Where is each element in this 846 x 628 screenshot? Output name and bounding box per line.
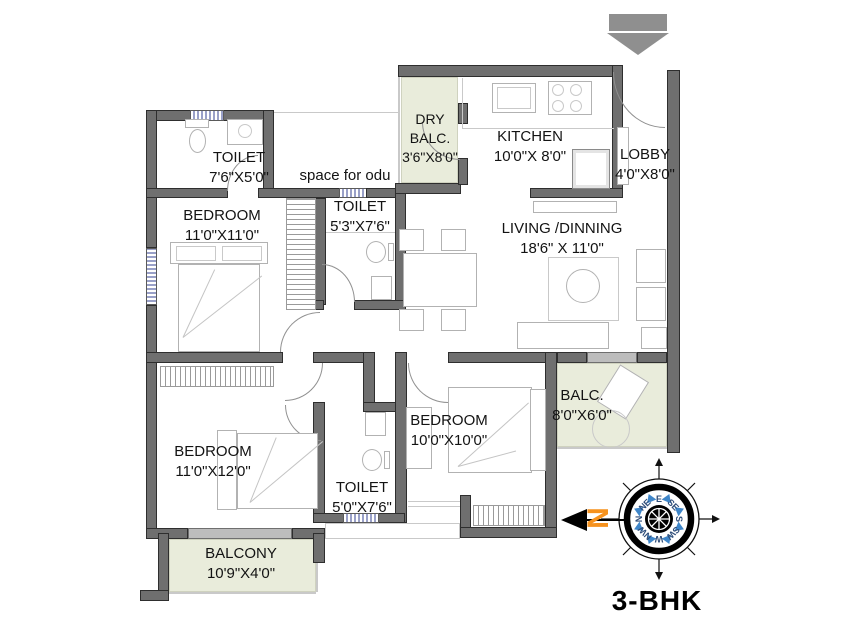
wardrobe [473,505,545,526]
dining-table [403,253,477,307]
wall [258,188,341,198]
burner [552,100,564,112]
room-dims: 4'0"X8'0" [615,165,675,185]
wc [366,241,386,263]
kitchen-sink-bowl [497,87,531,109]
wall [158,533,169,595]
dining-chair [441,309,466,331]
console-table [533,201,617,213]
compass-arrowhead-icon [712,515,720,523]
wc [362,449,382,471]
room-dims: 7'6"X5'0" [209,168,269,188]
wall [545,352,557,538]
room-name: BALC. [402,129,458,148]
wall [458,103,468,124]
room-label-living: LIVING /DINNING 18'6" X 11'0" [502,219,623,259]
odu-annotation: space for odu [300,166,391,186]
room-name: TOILET [332,478,392,498]
dining-chair [399,229,424,251]
room-dims: 10'0"X 8'0" [494,147,566,167]
room-name: TOILET [209,148,269,168]
armchair [636,287,666,321]
plan-title: 3-BHK [612,585,703,617]
compass-arrowhead-icon [655,572,663,580]
washbasin-bowl [238,124,252,138]
room-name: KITCHEN [494,127,566,147]
compass-hub-spokes [649,509,670,530]
pillow [222,246,262,261]
wall [395,183,461,194]
wardrobe [160,366,274,387]
wall [530,188,623,198]
room-name: BEDROOM [174,442,252,462]
room-label-balcony-right: BALC. 8'0"X6'0" [552,386,612,426]
room-name: BALCONY [205,544,277,564]
room-dims: 5'0"X7'6" [332,498,392,518]
room-name: TOILET [330,197,390,217]
door-arc [280,312,320,352]
sliding-door [587,352,637,363]
room-label-toilet-3: TOILET 5'0"X7'6" [332,478,392,518]
sofa [517,322,609,349]
vent-line [408,501,460,502]
bed-headboard [530,389,546,471]
odu-boundary-line [274,112,400,113]
room-name: LIVING /DINNING [502,219,623,239]
room-dims: 3'6"X8'0" [402,148,458,167]
dining-chair [399,309,424,331]
room-label-toilet-1: TOILET 7'6"X5'0" [209,148,269,188]
room-name: BEDROOM [183,206,261,226]
entry-arrow-bar [609,14,667,31]
side-table [641,327,667,349]
armchair [636,249,666,283]
room-name: LOBBY [615,145,675,165]
wall [460,527,557,538]
wall [313,533,325,563]
odu-text: space for odu [300,167,391,184]
floor-plan: TOILET 7'6"X5'0" BEDROOM 11'0"X11'0" TOI… [0,0,846,628]
service-shaft [325,523,460,539]
room-label-lobby: LOBBY 4'0"X8'0" [615,145,675,185]
wall [398,65,616,77]
window [146,248,157,305]
kitchen-counter-edge [462,78,463,129]
wall [146,305,157,539]
wall [140,590,169,601]
compass-label-e: E [656,494,662,504]
fridge [572,149,610,189]
room-label-dry-balcony: DRY BALC. 3'6"X8'0" [402,110,458,167]
door-arc [285,363,323,401]
door-arc [322,264,355,302]
entry-arrow-icon [607,33,669,55]
balcony-bottom-railing [168,592,316,594]
wc-tank [384,451,390,469]
room-name: DRY [402,110,458,129]
room-name: BALC. [552,386,612,406]
door-arc [408,363,448,403]
compass-label-n: N [634,516,644,523]
room-dims: 8'0"X6'0" [552,406,612,426]
burner [552,84,564,96]
room-dims: 11'0"X11'0" [183,226,261,246]
compass-arrowhead-icon [655,458,663,466]
north-label: N [584,507,614,529]
room-label-bedroom-2: BEDROOM 11'0"X12'0" [174,442,252,482]
wall [557,352,587,363]
dining-chair [441,229,466,251]
room-label-balcony-bottom: BALCONY 10'9"X4'0" [205,544,277,584]
wall [458,158,468,185]
room-dims: 18'6" X 11'0" [502,239,623,259]
dry-balcony-railing [398,77,400,183]
wall [146,110,157,248]
room-dims: 5'3"X7'6" [330,217,390,237]
wall [146,352,283,363]
room-name: BEDROOM [410,411,488,431]
wall [637,352,667,363]
pillow [176,246,216,261]
coffee-table [566,269,600,303]
wc [189,129,206,153]
room-dims: 11'0"X12'0" [174,462,252,482]
burner [570,100,582,112]
compass-label-s: S [674,516,684,522]
wardrobe [286,198,316,310]
room-label-bedroom-1: BEDROOM 11'0"X11'0" [183,206,261,246]
compass-label-w: W [654,534,663,544]
room-label-toilet-2: TOILET 5'3"X7'6" [330,197,390,237]
washbasin [365,412,386,436]
burner [570,84,582,96]
wall [146,188,228,198]
wc-tank [388,243,394,261]
wc-tank [185,119,209,128]
wall [667,70,680,453]
washbasin [371,276,392,300]
room-label-bedroom-3: BEDROOM 10'0"X10'0" [410,411,488,451]
room-dims: 10'0"X10'0" [410,431,488,451]
sliding-door [188,528,292,539]
room-dims: 10'9"X4'0" [205,564,277,584]
vent-line [408,506,460,507]
room-label-kitchen: KITCHEN 10'0"X 8'0" [494,127,566,167]
wall [448,352,557,363]
